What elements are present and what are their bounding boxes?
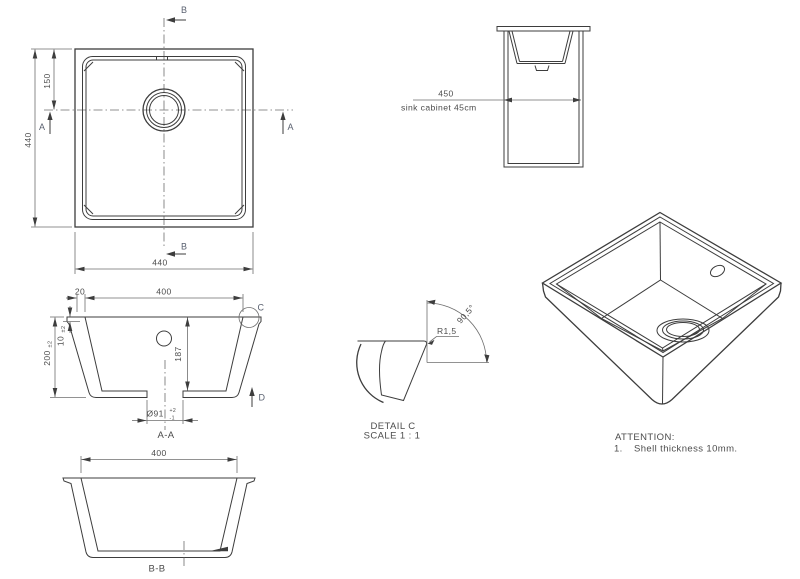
aa-drain-tolerance-lower: -1 — [170, 416, 175, 422]
aa-height-tolerance-label: ±2 — [48, 341, 54, 348]
section-aa-view: 20 400 200 ±2 10 ±2 187 Ø91 +2 -1 C D A-… — [42, 287, 266, 442]
bb-opening-dim-label: 400 — [151, 448, 166, 458]
section-aa-right-wall — [183, 317, 261, 398]
aa-wall-thickness-tolerance-label: ±2 — [61, 326, 67, 333]
aa-rim-overhang-dim-label: 20 — [75, 287, 85, 297]
technical-drawing-sheet: 440 150 440 A A B B — [0, 0, 800, 579]
detail-c-scale: SCALE 1 : 1 — [364, 431, 421, 442]
plan-corner-chamfer — [84, 205, 93, 214]
detail-c-wall-section — [380, 341, 427, 401]
attention-note-number: 1. — [614, 444, 623, 455]
aa-depth-dim-label: 187 — [173, 346, 183, 361]
sink-technical-drawing: 440 150 440 A A B B — [0, 0, 800, 579]
section-b-marker-bottom: B — [181, 242, 187, 252]
plan-overflow-notch — [157, 57, 168, 61]
iso-rim-outer — [543, 213, 782, 358]
plan-view: 440 150 440 A A B B — [23, 5, 294, 274]
plan-corner-chamfer — [235, 205, 244, 214]
view-d-marker: D — [259, 393, 266, 403]
section-aa-title: A-A — [157, 430, 174, 441]
detail-c-radius-label: R1,5 — [437, 326, 457, 336]
isometric-view — [543, 213, 782, 405]
aa-height-dim-label: 200 — [42, 350, 52, 365]
section-a-marker-right: A — [288, 122, 294, 132]
detail-c-view: 90,5° R1,5 DETAIL C SCALE 1 : 1 — [357, 300, 490, 442]
iso-rim-opening — [557, 222, 767, 348]
cabinet-elevation-view: 450 sink cabinet 45cm — [401, 27, 590, 168]
section-bb-view: 400 B-B — [63, 448, 255, 575]
cabinet-outer — [504, 31, 583, 167]
iso-rim-mid — [550, 217, 774, 353]
overflow-hole — [157, 331, 172, 346]
angle-dim-arc — [427, 303, 487, 363]
iso-drain-inner — [667, 323, 700, 337]
detail-c-angle-label: 90,5° — [455, 302, 477, 325]
aa-drain-diameter-label: Ø91 — [147, 409, 164, 419]
plan-corner-chamfer — [84, 62, 93, 71]
attention-note: ATTENTION: 1. Shell thickness 10mm. — [614, 432, 737, 455]
section-aa-left-wall — [67, 317, 147, 398]
plan-drain-offset-dim-label: 150 — [42, 73, 52, 88]
detail-c-marker: C — [258, 303, 265, 313]
attention-note-text: Shell thickness 10mm. — [634, 444, 737, 455]
countertop — [497, 27, 590, 32]
bb-drain-lip — [209, 547, 228, 551]
section-bb-shell — [63, 478, 255, 558]
attention-heading: ATTENTION: — [615, 432, 675, 443]
aa-drain-tolerance-upper: +2 — [170, 408, 177, 414]
iso-basin-bottom — [602, 280, 723, 351]
cabinet-width-dim-label: 450 — [438, 89, 453, 99]
plan-width-dim-label: 440 — [152, 258, 167, 268]
plan-corner-chamfer — [235, 62, 244, 71]
section-a-marker-left: A — [39, 122, 45, 132]
iso-front-edge — [663, 357, 664, 404]
section-b-marker-top: B — [181, 5, 187, 15]
section-bb-title: B-B — [148, 564, 165, 575]
iso-overflow-hole — [709, 263, 727, 279]
cabinet-caption: sink cabinet 45cm — [401, 103, 477, 113]
basin-drain-stub — [535, 66, 549, 71]
plan-height-dim-label: 440 — [23, 132, 33, 147]
aa-opening-dim-label: 400 — [156, 287, 171, 297]
aa-wall-thickness-dim-label: 10 — [56, 336, 66, 346]
